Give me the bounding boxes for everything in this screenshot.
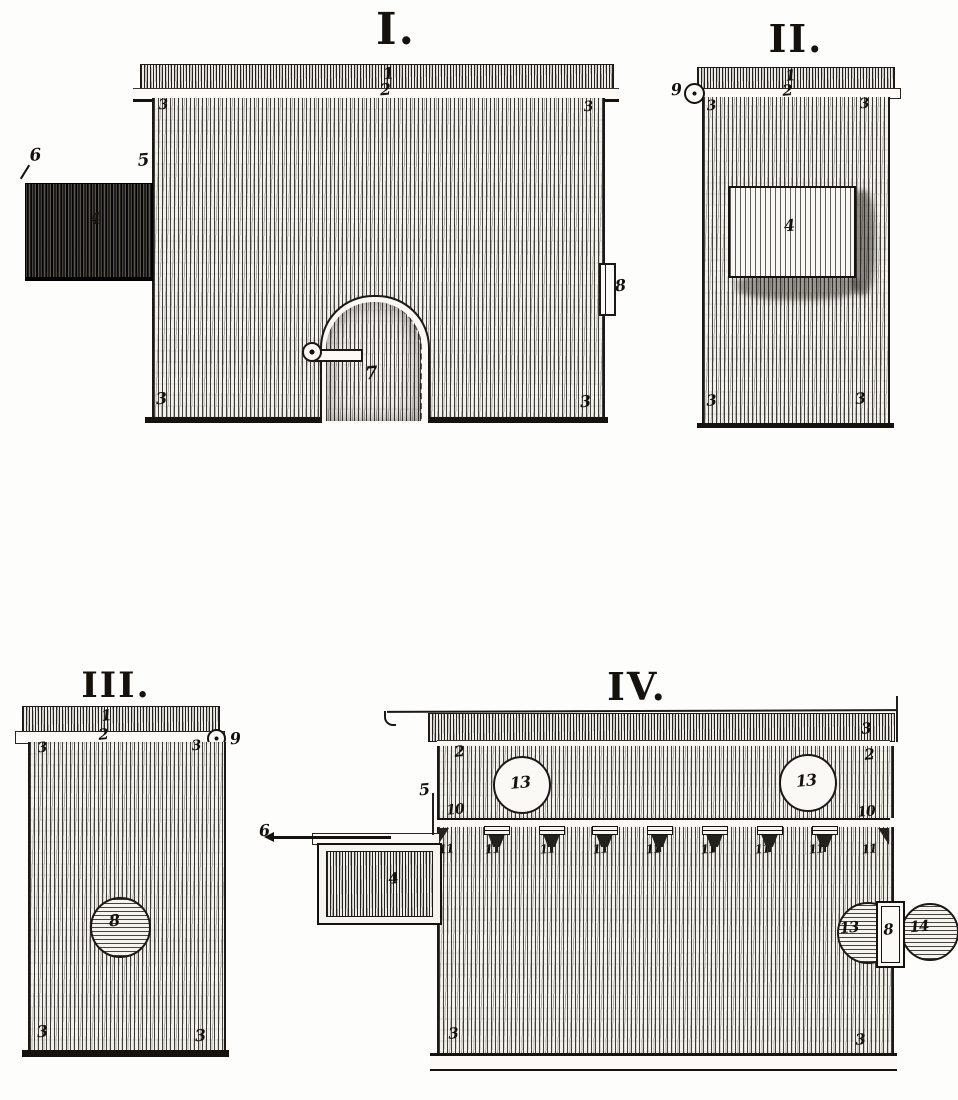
funnel-cap [539, 826, 565, 835]
funnel-cap [484, 826, 510, 835]
part-label-2: 2 [379, 82, 390, 99]
part-label-11: 11 [861, 842, 877, 855]
fig1-cornice-molding [133, 88, 619, 102]
fig4-lower-board [437, 827, 894, 1053]
part-label-8: 8 [614, 278, 625, 295]
fig4-top-strip [437, 740, 890, 748]
part-label-10: 10 [446, 802, 465, 817]
fig1-front-board [152, 98, 605, 418]
part-label-3: 3 [37, 741, 47, 756]
fig4-funnel [809, 818, 841, 854]
part-label-6: 6 [258, 823, 269, 840]
part-label-3: 3 [855, 1032, 866, 1048]
fig1-drawer-dark [25, 183, 153, 281]
figure-3-title: III. [66, 668, 166, 703]
fig4-lid-edge-line [387, 709, 897, 713]
fig2-base-line [697, 423, 894, 428]
part-label-2: 2 [98, 727, 109, 743]
funnel-cap [812, 826, 838, 835]
fig3-rod-knob-9 [207, 729, 226, 748]
funnel-stem [768, 847, 771, 852]
fig4-funnel [589, 818, 621, 854]
fig2-slide-rod [686, 88, 901, 99]
funnel-throat [761, 835, 778, 847]
part-label-2: 2 [454, 744, 465, 760]
fig4-top-board [428, 713, 895, 742]
funnel-throat [488, 835, 505, 847]
fig1-door-handle-knob [302, 342, 322, 362]
part-label-4: 4 [89, 211, 100, 228]
fig1-arch-rim [320, 295, 430, 423]
fig3-front-board [28, 742, 226, 1052]
funnel-stem [550, 847, 553, 852]
part-label-3: 3 [191, 739, 201, 754]
part-label-3: 3 [706, 99, 716, 114]
part-label-3: 3 [861, 721, 872, 737]
part-label-3: 3 [579, 394, 590, 411]
fig2-panel-shadow-right [849, 190, 875, 295]
part-label-1: 1 [101, 708, 112, 724]
part-label-2: 2 [864, 747, 875, 763]
part-label-14: 14 [909, 919, 929, 936]
funnel-throat [651, 835, 668, 847]
part-label-3: 3 [859, 97, 869, 112]
part-label-13: 13 [839, 920, 859, 937]
part-label-6: 6 [29, 147, 41, 165]
fig2-front-board [702, 97, 890, 426]
part-label-5: 5 [418, 782, 429, 799]
funnel-stem [495, 847, 498, 852]
part-label-3: 3 [194, 1028, 205, 1045]
part-label-8: 8 [883, 922, 894, 938]
fig4-base-board [430, 1053, 897, 1071]
fig1-base-line [145, 417, 608, 423]
fig4-drawer-rail [312, 833, 440, 845]
funnel-throat [543, 835, 560, 847]
part-label-3: 3 [583, 100, 593, 115]
fig4-funnel [644, 818, 676, 854]
figure-4-title: IV. [592, 668, 682, 706]
fig1-cornice-board [140, 64, 614, 90]
fig4-corner-bracket-right [878, 828, 889, 845]
part-label-3: 3 [706, 393, 717, 409]
fig2-panel-shadow-bottom [737, 272, 859, 300]
part-label-4: 4 [388, 871, 399, 887]
part-label-3: 3 [158, 98, 168, 113]
fig4-rod-5 [432, 793, 434, 835]
part-label-9: 9 [670, 82, 681, 99]
fig3-base-line [22, 1050, 229, 1057]
funnel-cap [592, 826, 618, 835]
fig4-drawer [317, 843, 442, 925]
fig4-drawer-face [326, 851, 433, 917]
fig4-funnel [699, 818, 731, 854]
part-label-3: 3 [36, 1024, 47, 1041]
fig4-pull-rod-6 [273, 836, 391, 839]
fig4-lid-curl [384, 711, 396, 726]
fig4-funnel [536, 818, 568, 854]
part-label-3: 3 [155, 391, 166, 408]
fig2-cornice-board [697, 67, 895, 90]
fig1-door-handle-bar [313, 349, 363, 362]
fig4-right-rod [896, 696, 898, 742]
fig3-disc-8 [90, 897, 151, 958]
figure-2-title: II. [756, 20, 836, 58]
fig1-arrow-6 [20, 165, 30, 180]
funnel-throat [706, 835, 723, 847]
part-label-10: 10 [857, 804, 876, 819]
funnel-stem [603, 847, 606, 852]
funnel-stem [713, 847, 716, 852]
fig4-funnel [481, 818, 513, 854]
part-label-8: 8 [108, 913, 119, 930]
fig4-upper-chamber [437, 746, 894, 818]
fig1-arch-door [326, 302, 422, 421]
funnel-throat [596, 835, 613, 847]
part-label-9: 9 [229, 731, 240, 748]
funnel-cap [702, 826, 728, 835]
part-label-2: 2 [782, 83, 793, 99]
fig4-funnel [754, 818, 786, 854]
fig1-side-latch-8 [599, 263, 616, 316]
part-label-4: 4 [783, 218, 794, 235]
part-label-5: 5 [137, 152, 149, 170]
part-label-11: 11 [438, 842, 454, 855]
part-label-7: 7 [364, 365, 377, 384]
fig2-rod-knob-9 [684, 83, 705, 104]
part-label-13: 13 [795, 772, 817, 790]
funnel-stem [658, 847, 661, 852]
funnel-cap [757, 826, 783, 835]
part-label-13: 13 [509, 774, 531, 792]
figure-1-title: I. [356, 8, 436, 52]
funnel-stem [823, 847, 826, 852]
part-label-3: 3 [448, 1026, 459, 1042]
funnel-cap [647, 826, 673, 835]
fig3-cornice-board [22, 706, 220, 733]
plate: I. II. III. IV. [0, 0, 958, 1100]
funnel-throat [816, 835, 833, 847]
part-label-3: 3 [855, 391, 866, 407]
